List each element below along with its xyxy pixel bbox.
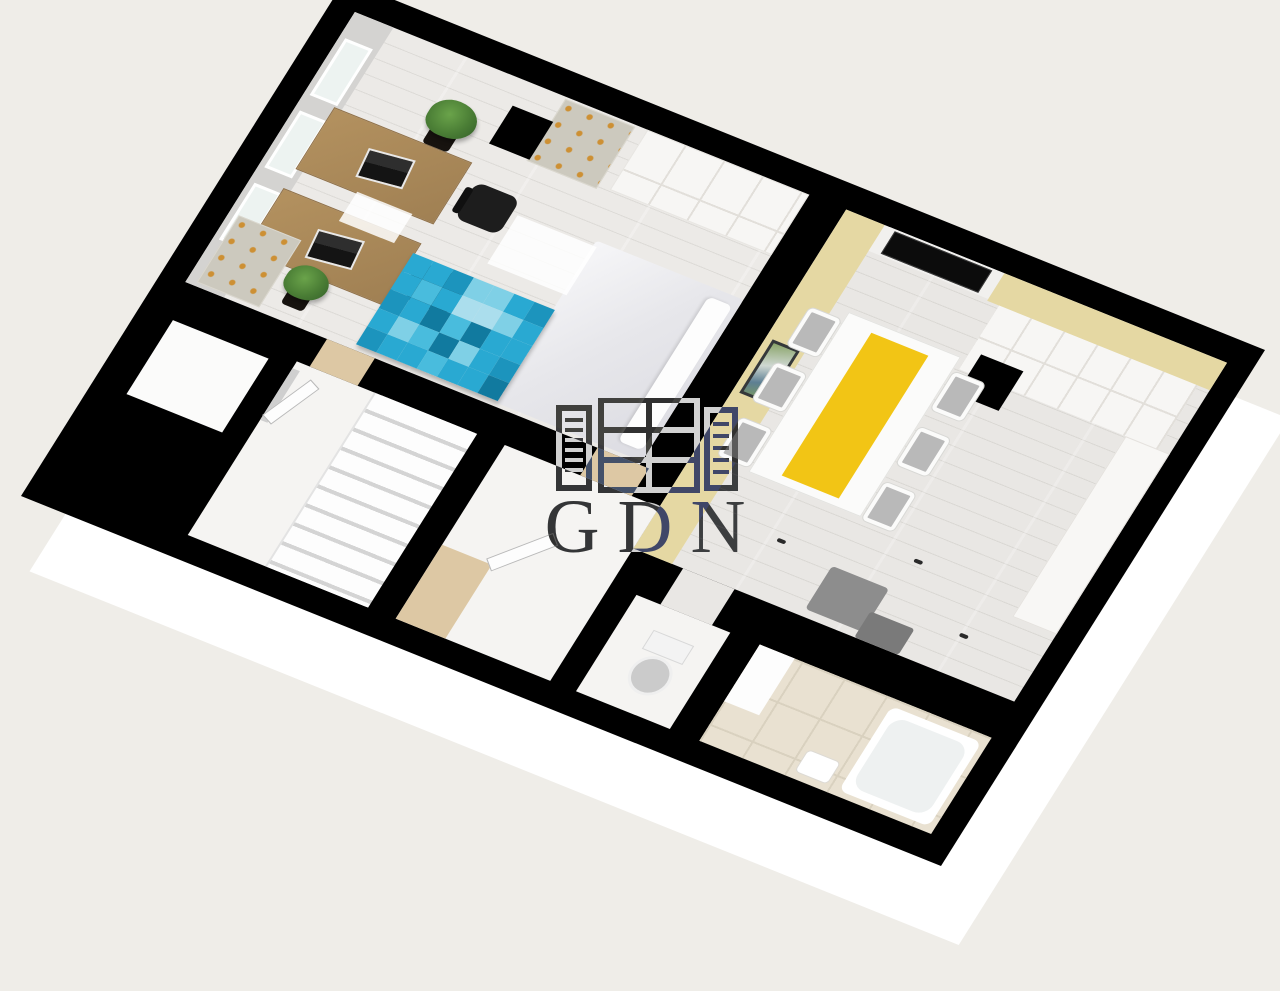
bathtub: [839, 706, 982, 827]
toilet: [624, 654, 677, 698]
interior-door: [486, 533, 558, 572]
partition-wall: [724, 644, 795, 715]
exterior-wall-face: [126, 320, 268, 432]
window: [310, 38, 373, 106]
table-runner: [782, 333, 929, 499]
bathtub-basin: [850, 716, 970, 817]
floor-mark: [776, 538, 786, 545]
wardrobe: [610, 130, 810, 255]
wash-basin: [796, 750, 840, 783]
floor-mark: [913, 558, 923, 565]
hall-threshold-floor: [396, 545, 492, 639]
floor-mark: [959, 633, 969, 640]
floorplan-stage: GDN: [0, 0, 1280, 991]
